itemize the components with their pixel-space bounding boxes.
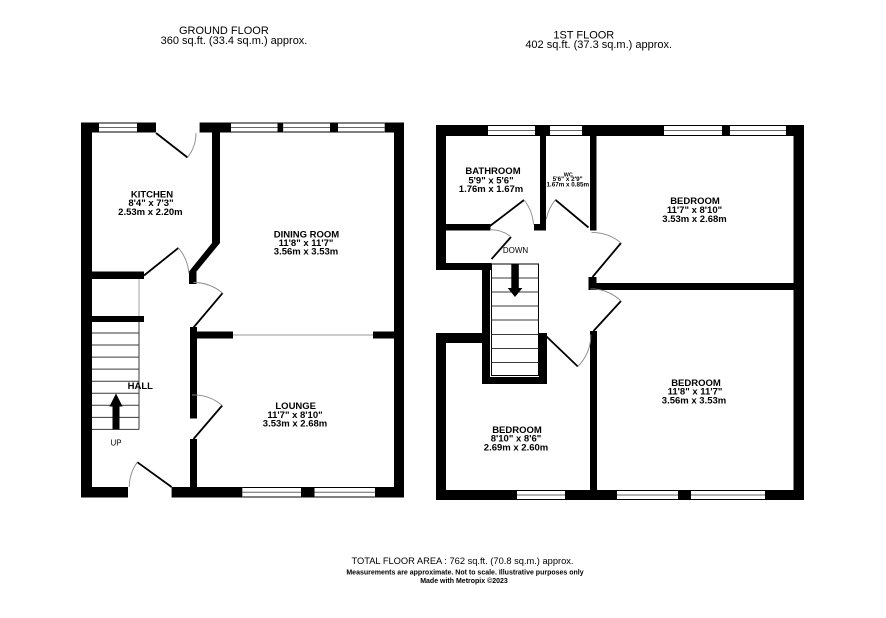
svg-text:2.69m x 2.60m: 2.69m x 2.60m: [484, 443, 548, 454]
svg-text:DOWN: DOWN: [503, 246, 529, 255]
svg-text:402 sq.ft. (37.3 sq.m.) approx: 402 sq.ft. (37.3 sq.m.) approx.: [525, 39, 672, 51]
svg-text:1.67m x 0.85m: 1.67m x 0.85m: [546, 182, 589, 189]
svg-text:TOTAL FLOOR AREA : 762 sq.ft.: TOTAL FLOOR AREA : 762 sq.ft. (70.8 sq.m…: [351, 556, 573, 566]
svg-text:3.53m x 2.68m: 3.53m x 2.68m: [662, 214, 726, 225]
svg-text:HALL: HALL: [128, 381, 154, 392]
svg-text:2.53m x 2.20m: 2.53m x 2.20m: [118, 207, 182, 218]
svg-text:Made with Metropix ©2023: Made with Metropix ©2023: [420, 577, 508, 585]
svg-text:3.53m x 2.68m: 3.53m x 2.68m: [263, 419, 327, 430]
svg-text:360 sq.ft. (33.4 sq.m.) approx: 360 sq.ft. (33.4 sq.m.) approx.: [161, 35, 308, 47]
svg-text:Measurements are approximate.: Measurements are approximate. Not to sca…: [346, 570, 583, 577]
svg-text:3.56m x 3.53m: 3.56m x 3.53m: [662, 396, 726, 407]
svg-text:1.76m x 1.67m: 1.76m x 1.67m: [459, 184, 523, 195]
svg-text:3.56m x 3.53m: 3.56m x 3.53m: [274, 247, 338, 258]
svg-text:UP: UP: [110, 439, 121, 448]
